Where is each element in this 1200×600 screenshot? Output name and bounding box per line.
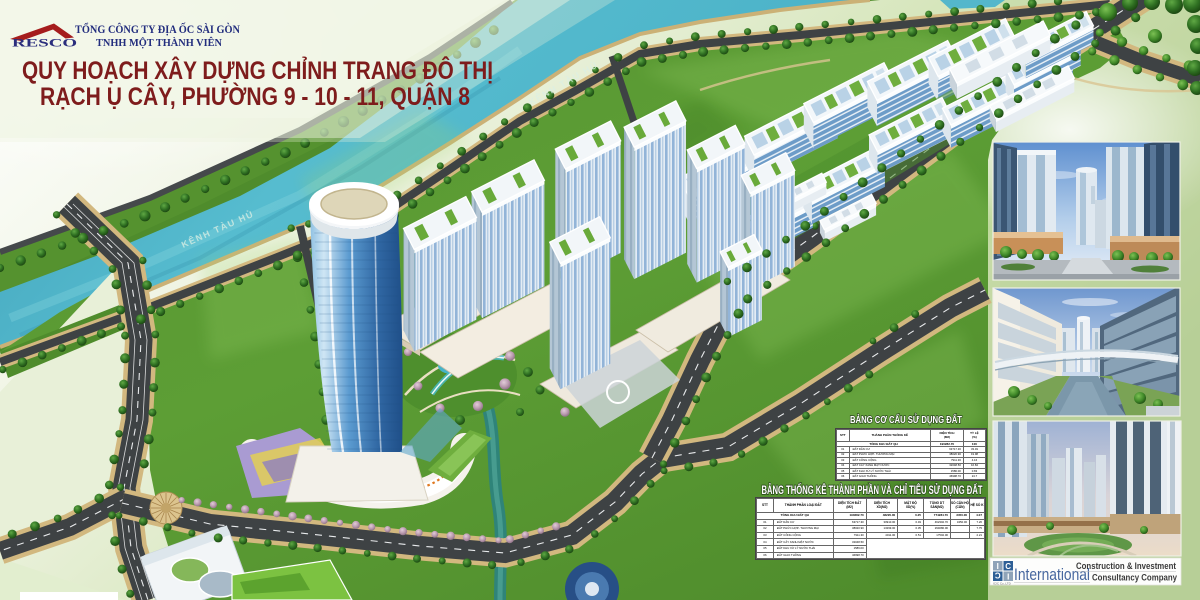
svg-text:I: I: [1007, 572, 1009, 581]
svg-text:BẢNG THỐNG KÊ THÀNH PHẦN VÀ CH: BẢNG THỐNG KÊ THÀNH PHẦN VÀ CHỈ TIÊU SỬ …: [762, 482, 983, 497]
svg-text:QUY HOẠCH XÂY DỰNG CHỈNH TRANG: QUY HOẠCH XÂY DỰNG CHỈNH TRANG ĐÔ THỊ: [22, 55, 493, 85]
svg-text:C: C: [1005, 562, 1011, 571]
svg-text:I: I: [997, 562, 999, 571]
svg-text:ICIC Co.,LTD: ICIC Co.,LTD: [993, 582, 1012, 586]
svg-text:BẢNG CƠ CẤU SỬ DỤNG ĐẤT: BẢNG CƠ CẤU SỬ DỤNG ĐẤT: [850, 413, 962, 426]
svg-text:C: C: [995, 571, 1001, 580]
svg-text:TỔNG CÔNG TY ĐỊA ỐC SÀI GÒN: TỔNG CÔNG TY ĐỊA ỐC SÀI GÒN: [75, 21, 241, 36]
svg-text:RẠCH Ụ CÂY, PHƯỜNG 9 - 10 - 11: RẠCH Ụ CÂY, PHƯỜNG 9 - 10 - 11, QUẬN 8: [40, 81, 470, 111]
svg-text:RESCO: RESCO: [12, 38, 77, 50]
svg-text:TNHH MỘT THÀNH VIÊN: TNHH MỘT THÀNH VIÊN: [96, 36, 222, 49]
svg-text:Consultancy Company: Consultancy Company: [1092, 573, 1177, 583]
svg-text:Construction & Investment: Construction & Investment: [1076, 561, 1176, 571]
